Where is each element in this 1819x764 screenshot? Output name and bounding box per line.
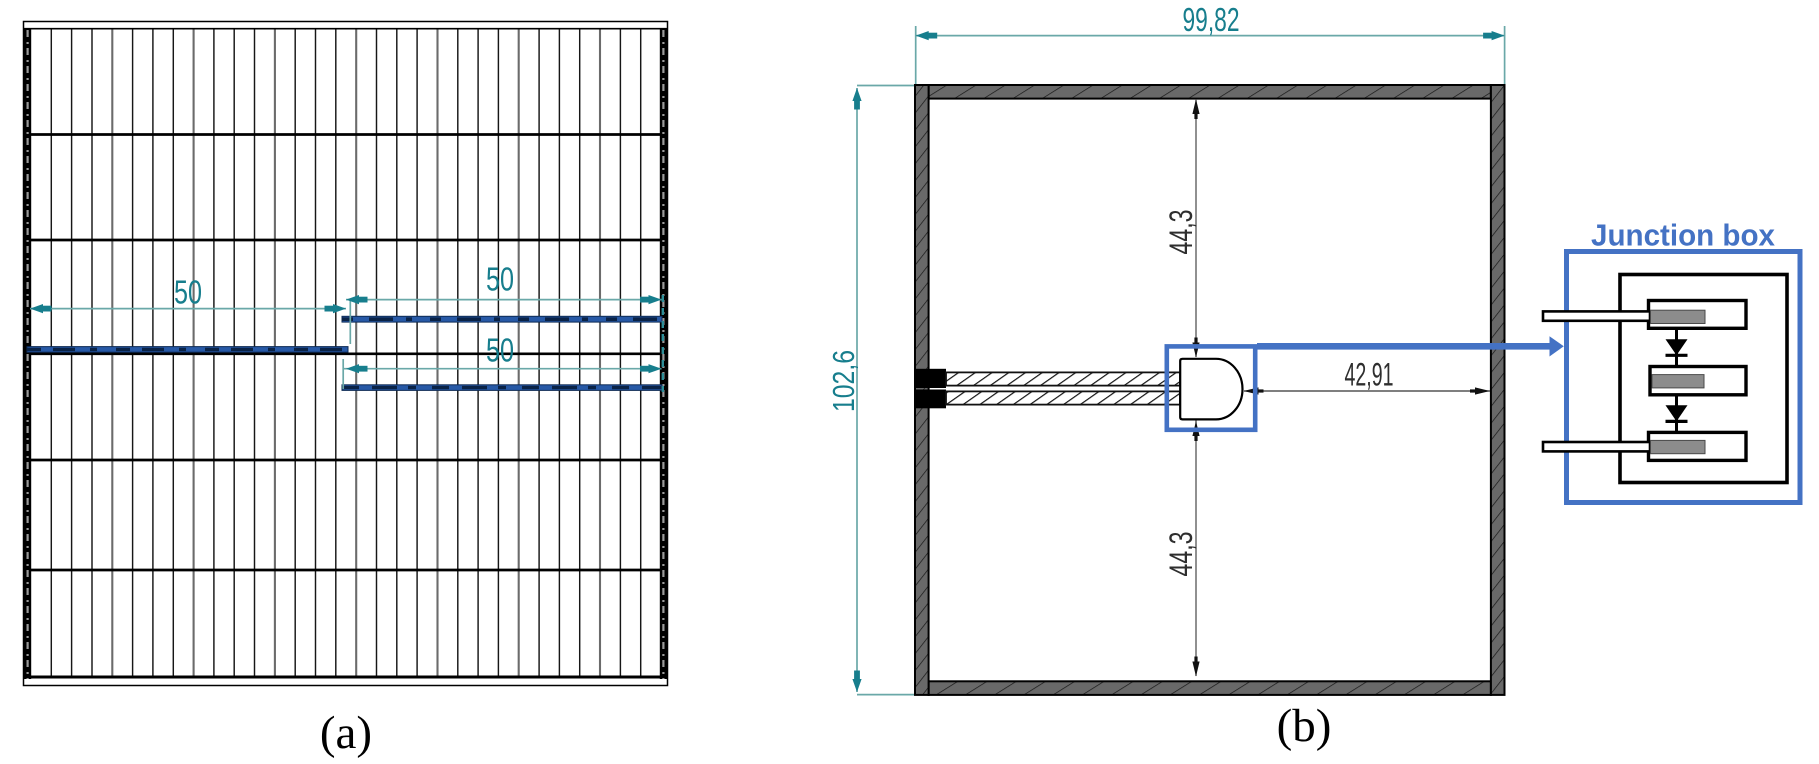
- svg-text:102,6: 102,6: [826, 350, 861, 412]
- svg-text:44,3: 44,3: [1163, 210, 1199, 255]
- svg-text:50: 50: [486, 261, 514, 298]
- svg-text:50: 50: [486, 332, 514, 369]
- svg-text:(b): (b): [1277, 700, 1332, 752]
- svg-text:Junction box: Junction box: [1591, 218, 1776, 253]
- svg-text:99,82: 99,82: [1183, 1, 1240, 38]
- svg-text:50: 50: [174, 274, 202, 311]
- svg-text:42,91: 42,91: [1345, 357, 1394, 393]
- svg-text:44,3: 44,3: [1163, 532, 1199, 577]
- svg-text:(a): (a): [320, 707, 372, 759]
